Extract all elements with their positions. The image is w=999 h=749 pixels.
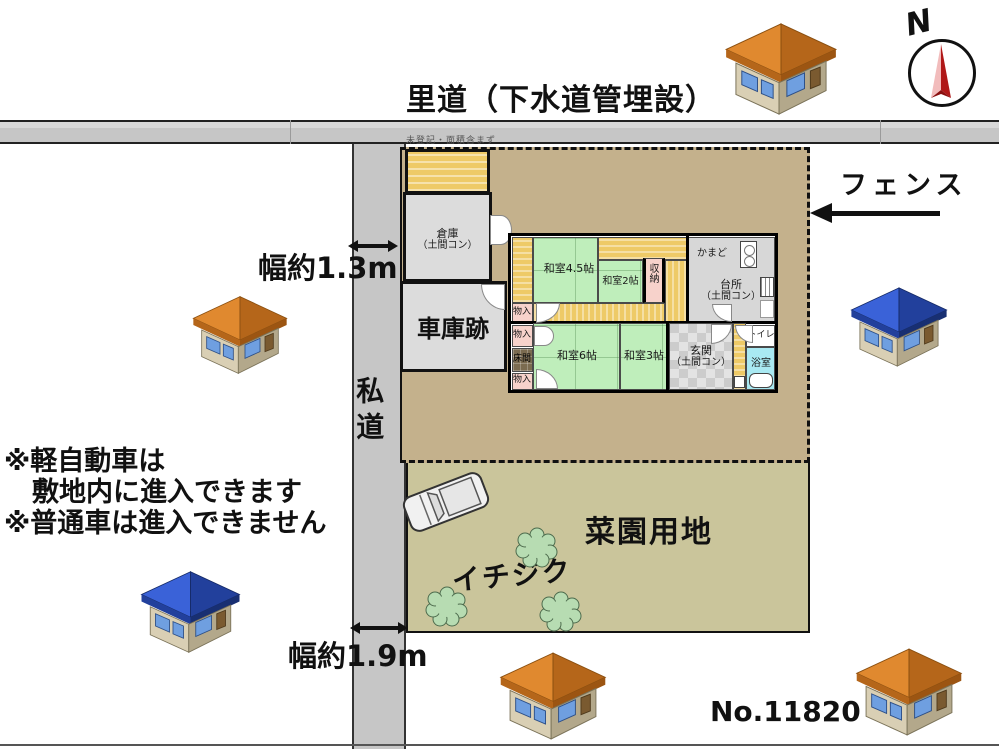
room-washitsu-3-label: 和室3帖 [620,349,668,362]
door-arc [534,326,554,346]
storage-label-line1: 倉庫 [406,227,489,240]
garage-door-arc [481,284,505,310]
kitchen-label: 台所 （土間コン） [691,278,771,303]
storage-label-line2: （土間コン） [406,240,489,252]
fence-label: フェンス [840,170,967,201]
note-line-3: ※普通車は進入できません [4,508,326,539]
compass-needle-dark [941,44,951,98]
house-illustration-orange [190,293,290,377]
bath-label: 浴室 [747,358,775,370]
road-seam [880,120,881,144]
kamado-label: かまど [697,248,727,260]
kamado-burner [744,245,755,256]
fence-arrow-head [810,203,832,223]
compass-needle-light [931,44,941,98]
engawa-top-band [598,237,688,260]
note-line-2: 敷地内に進入できます [32,477,326,508]
washbasin-icon [734,376,745,388]
tokonoma-label: 床間 [513,354,531,365]
garage-label: 車庫跡 [417,316,489,344]
width-top-label: 幅約1.3m [258,252,398,285]
road-seam [290,120,291,144]
bathtub-icon [749,373,773,388]
closet-shuno-label: 収納 [646,263,658,283]
width-arrow-line [358,626,400,630]
fence-arrow-line [830,211,940,216]
engawa-left [512,237,533,303]
width-arrow-head [350,622,360,634]
terrace-deck [405,149,490,194]
kitchen-label-line2: （土間コン） [691,291,771,303]
room-washitsu-2-label: 和室2帖 [598,276,643,288]
bottom-edge-line [0,744,999,746]
storage-label: 倉庫 （土間コン） [406,227,489,252]
room-washitsu-4-5-label: 和室4.5帖 [541,262,597,275]
tiny-annotation: 未登記・面積含まず [406,133,496,146]
site-plan-diagram: 里道（下水道管埋設） N 未登記・面積含まず 倉庫 （土間コン） 車庫跡 和室4… [0,0,999,749]
top-road-label: 里道（下水道管埋設） [406,84,716,119]
closet-monoire-b-label: 物入 [513,330,531,341]
interior-wall [686,236,689,324]
room-washitsu-6-label: 和室6帖 [547,349,607,362]
width-arrow-line [356,244,390,248]
garden-label: 菜園用地 [585,516,713,551]
genkan-label-line2: （土間コン） [669,357,733,369]
genkan-label: 玄関 （土間コン） [669,344,733,369]
private-road-label: 私道 [352,376,384,448]
house-illustration-blue [138,566,243,658]
engawa-right-strip [665,260,688,323]
compass-needle-icon [911,42,973,104]
house-illustration-orange [722,20,840,118]
reference-number: No.11820 [710,696,861,728]
kitchen-label-line1: 台所 [691,278,771,291]
tree-icon [425,584,469,628]
notes-text: ※軽自動車は 敷地内に進入できます ※普通車は進入できません [4,446,326,539]
house-illustration-orange [497,648,609,744]
compass-n-label: N [902,3,936,44]
kamado-burner [744,256,755,267]
closet-monoire-c-label: 物入 [513,375,531,386]
genkan-label-line1: 玄関 [669,344,733,357]
kitchen-sink-icon [760,277,774,297]
width-arrow-head [398,622,408,634]
tree-icon [539,589,583,633]
compass-icon [908,39,976,107]
note-line-1: ※軽自動車は [4,446,326,477]
width-bottom-label: 幅約1.9m [288,640,428,673]
tree-icon [515,525,559,569]
kitchen-counter-icon [760,300,774,318]
closet-monoire-a-label: 物入 [513,307,531,318]
storage-building: 倉庫 （土間コン） [403,192,492,282]
house-illustration-orange [853,643,965,741]
floor-plan: 和室4.5帖 和室2帖 収納 台所 （土間コン） かまど 物入 物入 床間 物入… [508,233,778,393]
garage-area: 車庫跡 [400,281,507,372]
house-illustration-blue [848,282,950,372]
top-road [0,120,999,144]
kamado-stove-icon [740,241,757,268]
